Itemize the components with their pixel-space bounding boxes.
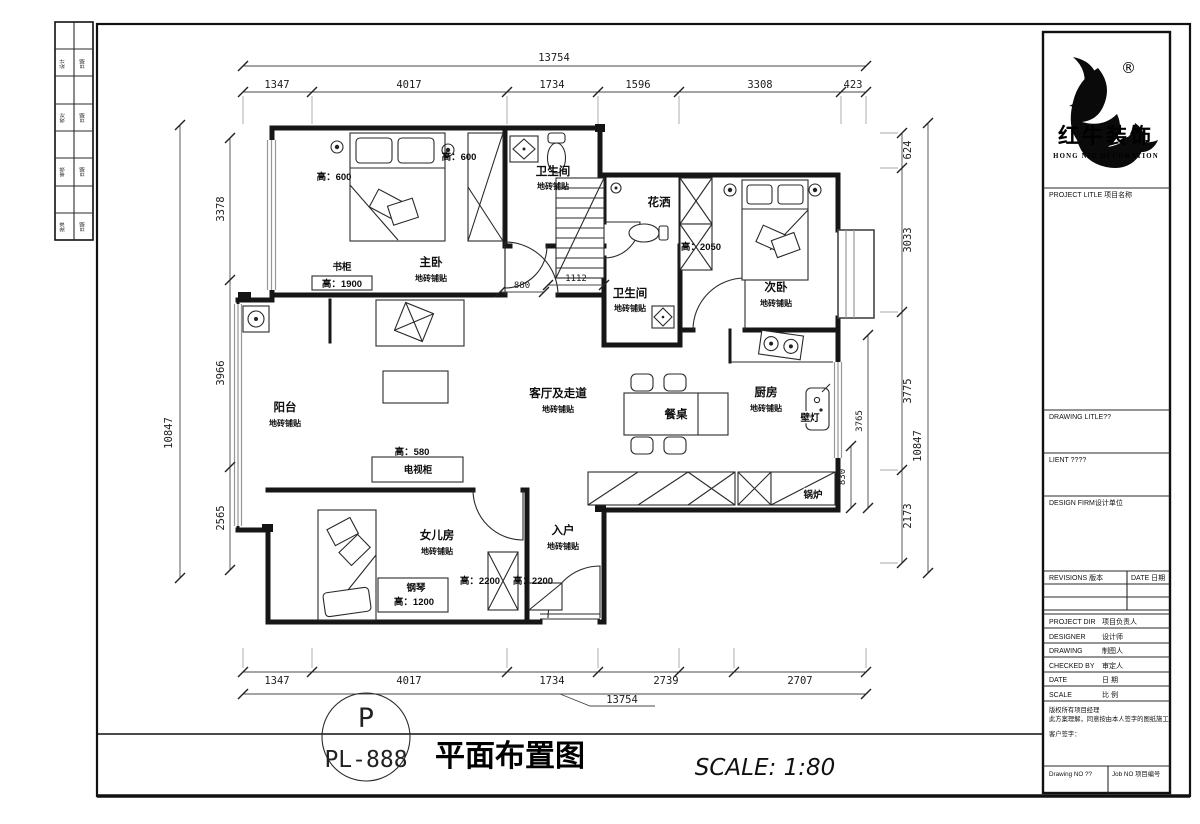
- drawing-sheet: 设计 日期 校对 日期 审核 日期 批准 日期: [0, 0, 1200, 824]
- strip-cell: 日期: [80, 222, 86, 232]
- strip-cell: 日期: [80, 113, 86, 123]
- tb-row-en: PROJECT DIR: [1049, 619, 1096, 626]
- tb-copyright-1: 版权所有项目经理: [1049, 705, 1100, 714]
- drawing-title: 平面布置图: [435, 740, 585, 773]
- strip-cell: 日期: [80, 167, 86, 177]
- tb-signature: 客户签字：: [1049, 729, 1080, 738]
- tb-row-en: CHECKED BY: [1049, 663, 1095, 670]
- room-finish: 地砖铺贴: [750, 403, 782, 413]
- tb-date-header: DATE 日期: [1131, 574, 1165, 582]
- tb-row-cn: 审定人: [1102, 661, 1123, 670]
- pillow: [398, 138, 434, 163]
- tb-drawing-title: DRAWING LITLE??: [1049, 414, 1111, 421]
- bay-window: [838, 230, 874, 318]
- dim-bottom-total: 13754: [606, 694, 638, 706]
- pillow: [356, 138, 392, 163]
- toilet: [629, 224, 659, 242]
- dim-left-total: 10847: [163, 417, 175, 449]
- coffee-table: [383, 371, 448, 403]
- dim-left: 3966: [215, 360, 227, 385]
- room-finish: 地砖铺贴: [760, 298, 792, 308]
- dim-top: 423: [844, 79, 863, 91]
- dim-inner: 3765: [855, 410, 865, 432]
- scale-note: SCALE: 1:80: [695, 755, 835, 781]
- height-note: 高：600: [442, 151, 477, 163]
- room-label-girl: 女儿房: [420, 528, 455, 542]
- height-note: 高：2050: [681, 241, 721, 253]
- room-label-bath1: 卫生间: [536, 164, 571, 178]
- chair: [664, 437, 686, 454]
- brand-cn: 红牛装饰: [1058, 124, 1154, 148]
- strip-cell: 校对: [59, 113, 66, 123]
- dim-top: 4017: [396, 79, 421, 91]
- dim-left: 2565: [215, 505, 227, 530]
- room-label-balcony: 阳台: [274, 400, 297, 414]
- dim-right: 624: [902, 141, 914, 160]
- dim-bottom: 2707: [787, 675, 812, 687]
- chair: [631, 437, 653, 454]
- tb-project-title: PROJECT LITLE 项目名称: [1049, 190, 1132, 199]
- dim-left: 3378: [215, 196, 227, 221]
- strip-cell: 设计: [59, 59, 66, 69]
- strip-cell: 批准: [59, 222, 66, 232]
- room-finish: 地砖铺贴: [421, 546, 453, 556]
- tb-row-cn: 比 例: [1102, 690, 1118, 699]
- dim-top: 1596: [625, 79, 650, 91]
- strip-cell: 审核: [59, 167, 66, 177]
- tb-client: LIENT ????: [1049, 457, 1086, 464]
- piano-label: 钢琴: [406, 582, 426, 594]
- dim-right: 2173: [902, 503, 914, 528]
- room-finish: 地砖铺贴: [542, 404, 574, 414]
- bookcase-label: 书柜: [332, 261, 352, 273]
- gas-stove: [759, 330, 804, 360]
- room-label-bedroom2: 次卧: [765, 280, 788, 294]
- tb-row-en: DESIGNER: [1049, 634, 1086, 641]
- tb-row-en: DATE: [1049, 677, 1067, 684]
- dining-table-label: 餐桌: [664, 407, 688, 421]
- pillow: [778, 185, 803, 204]
- dim-right-total: 10847: [912, 430, 924, 462]
- height-note: 高：1200: [394, 596, 434, 608]
- height-note: 高：2200: [513, 575, 553, 587]
- tb-row-cn: 项目负责人: [1102, 617, 1137, 626]
- dim-right: 3775: [902, 378, 914, 403]
- height-note: 高：600: [317, 171, 352, 183]
- registered-mark: ®: [1121, 59, 1136, 77]
- chair: [631, 374, 653, 391]
- dim-top: 1734: [539, 79, 564, 91]
- detail-circle-letter: P: [358, 703, 374, 734]
- tb-row-en: SCALE: [1049, 692, 1072, 699]
- dim-bottom: 2739: [653, 675, 678, 687]
- room-label-shower: 花洒: [648, 195, 671, 209]
- tb-row-cn: 设计师: [1102, 632, 1123, 641]
- dim-top: 3308: [747, 79, 772, 91]
- brand-en: HONG NIU DECORATION: [1053, 153, 1159, 160]
- dim-inner: 1112: [565, 274, 587, 284]
- strip-cell: 日期: [80, 59, 86, 69]
- chair: [664, 374, 686, 391]
- tb-copyright-2: 此方案理解，同意按由本人签字的图纸施工；: [1049, 714, 1175, 723]
- room-finish: 地砖铺贴: [537, 181, 569, 191]
- tb-row-cn: 制图人: [1102, 646, 1123, 655]
- tb-revisions: REVISIONS 版本: [1049, 573, 1103, 582]
- dim-bottom: 1734: [539, 675, 564, 687]
- toilet-tank: [548, 133, 565, 143]
- height-note: 高：2200: [460, 575, 500, 587]
- height-note: 高：1900: [322, 278, 362, 290]
- pillow: [747, 185, 772, 204]
- dim-top-total: 13754: [538, 52, 570, 64]
- dim-bottom: 4017: [396, 675, 421, 687]
- hallway-cabinet: [588, 472, 735, 505]
- room-label-entry: 入户: [552, 523, 575, 537]
- dim-inner: 880: [514, 281, 530, 291]
- dim-right: 3033: [902, 227, 914, 252]
- room-label-kitchen: 厨房: [755, 385, 778, 399]
- room-finish: 地砖铺贴: [614, 303, 646, 313]
- tv-cabinet-label: 电视柜: [404, 464, 433, 476]
- dim-inner: 830: [838, 469, 848, 485]
- height-note: 高：580: [395, 446, 430, 458]
- detail-circle-code: PL-888: [324, 747, 407, 773]
- tb-drawing-no: Drawing NO ??: [1049, 771, 1093, 778]
- room-finish: 地砖铺贴: [269, 418, 301, 428]
- wall-lamp-label: 壁灯: [800, 412, 820, 424]
- room-finish: 地砖铺贴: [415, 273, 447, 283]
- tb-job-no: Job NO 项目编号: [1112, 769, 1160, 778]
- tb-row-en: DRAWING: [1049, 648, 1083, 655]
- room-label-master: 主卧: [420, 255, 443, 269]
- tb-row-cn: 日 期: [1102, 676, 1118, 684]
- tb-design-firm: DESIGN FIRM设计单位: [1049, 498, 1123, 507]
- room-finish: 地砖铺贴: [547, 541, 579, 551]
- floor-plan-svg: 设计 日期 校对 日期 审核 日期 批准 日期: [0, 0, 1200, 824]
- dim-top: 1347: [264, 79, 289, 91]
- room-label-bath2: 卫生间: [613, 286, 648, 300]
- room-label-living: 客厅及走道: [528, 386, 587, 400]
- dim-bottom: 1347: [264, 675, 289, 687]
- boiler-label: 锅炉: [803, 489, 823, 501]
